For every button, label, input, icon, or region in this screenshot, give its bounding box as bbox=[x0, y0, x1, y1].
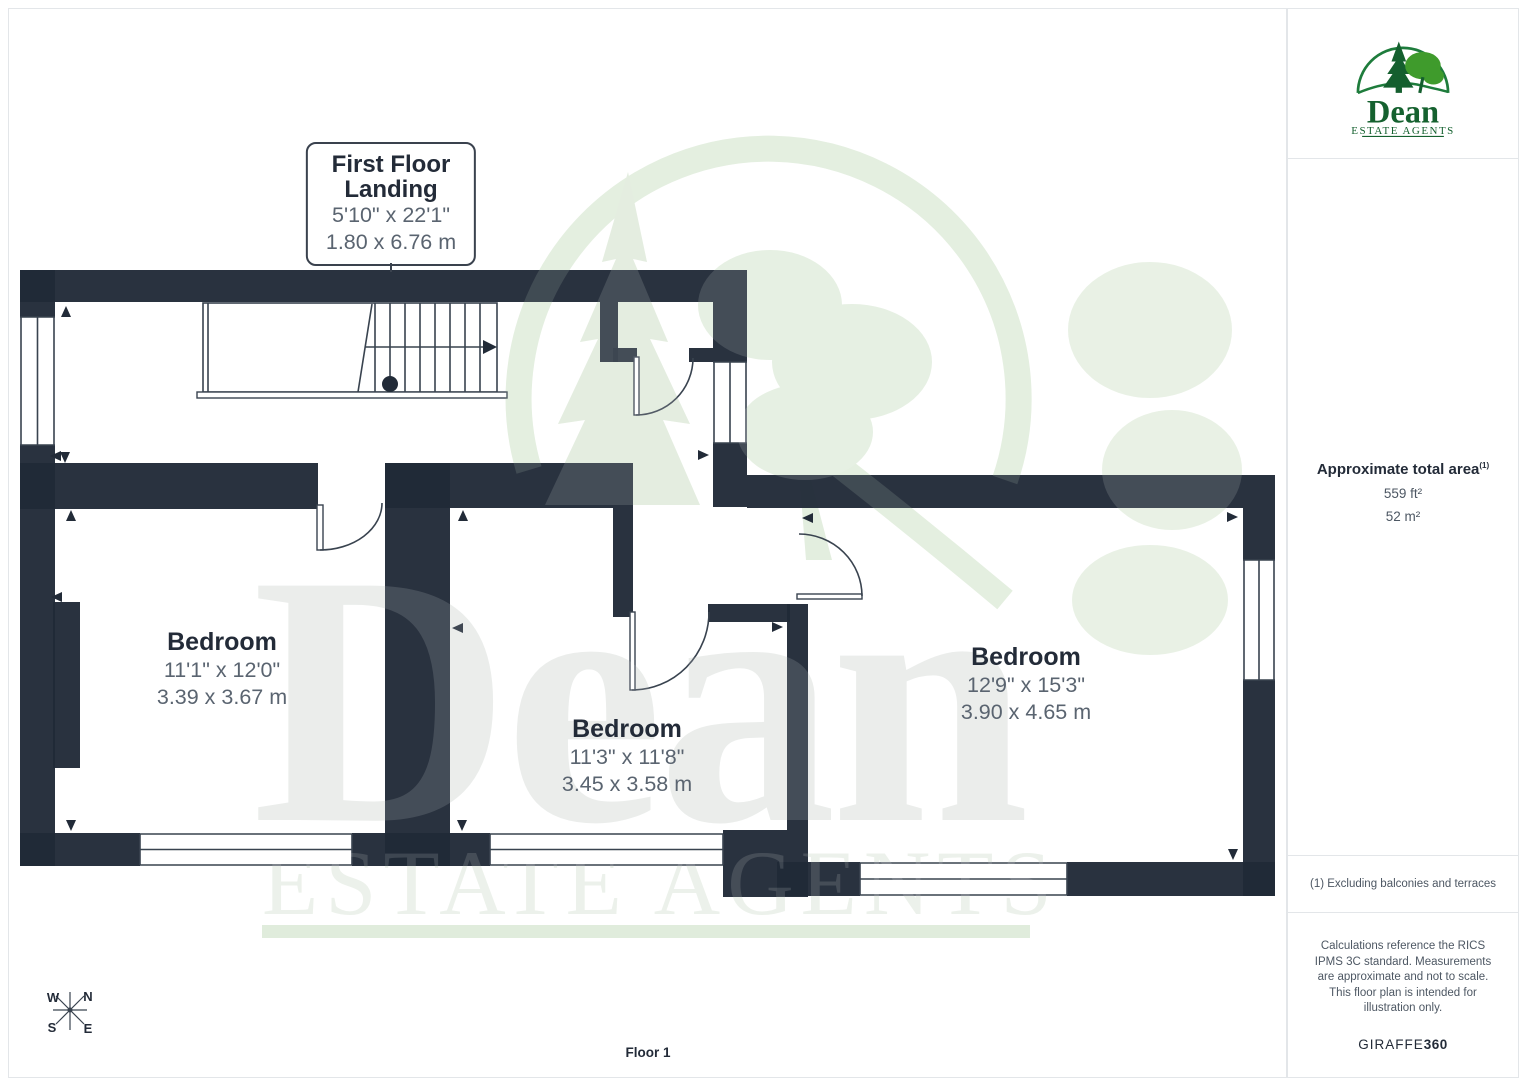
area-sqm: 52 m² bbox=[1288, 509, 1518, 524]
landing-label-callout: First Floor Landing 5'10" x 22'1" 1.80 x… bbox=[306, 142, 476, 266]
compass-east: E bbox=[84, 1021, 93, 1036]
total-area-section: Approximate total area(1) 559 ft² 52 m² bbox=[1288, 159, 1518, 856]
logo-tagline: ESTATE AGENTS bbox=[1351, 124, 1454, 136]
disclaimer-section: Calculations reference the RICS IPMS 3C … bbox=[1288, 913, 1518, 1052]
footnote-text: (1) Excluding balconies and terraces bbox=[1288, 856, 1518, 913]
landing-title: First Floor bbox=[326, 152, 456, 177]
floor-number-label: Floor 1 bbox=[625, 1045, 670, 1060]
stairs-newel-dot bbox=[382, 376, 398, 392]
landing-title-2: Landing bbox=[326, 177, 456, 202]
landing-imperial-dim: 5'10" x 22'1" bbox=[326, 202, 456, 229]
footnote-ref: (1) bbox=[1479, 461, 1489, 470]
area-heading: Approximate total area(1) bbox=[1288, 461, 1518, 478]
callout-connector-line bbox=[390, 263, 392, 272]
room-label-right-bedroom: Bedroom 12'9" x 15'3" 3.90 x 4.65 m bbox=[961, 642, 1091, 726]
window-right-bedroom-south bbox=[860, 862, 1067, 896]
giraffe360-brand: GIRAFFE360 bbox=[1306, 1037, 1500, 1053]
room-label-middle-bedroom: Bedroom 11'3" x 11'8" 3.45 x 3.58 m bbox=[562, 714, 692, 798]
window-left-bedroom-south bbox=[140, 833, 352, 866]
floor-plan-svg bbox=[0, 0, 1287, 1080]
disclaimer-text: Calculations reference the RICS IPMS 3C … bbox=[1306, 939, 1500, 1017]
agency-logo: Dean ESTATE AGENTS bbox=[1288, 9, 1518, 159]
compass-west: W bbox=[47, 990, 60, 1005]
floorplan-page: { "plan": { "landing_label": { "title_li… bbox=[0, 0, 1527, 1080]
door-left-bedroom bbox=[317, 503, 382, 550]
door-middle-bedroom bbox=[630, 612, 709, 690]
area-sqft: 559 ft² bbox=[1288, 486, 1518, 501]
dean-estate-agents-logo-icon: Dean ESTATE AGENTS bbox=[1340, 30, 1466, 138]
window-middle-bedroom-south bbox=[490, 833, 723, 866]
window-left-wall bbox=[20, 317, 55, 445]
stairs-direction-arrow-icon bbox=[483, 340, 497, 354]
window-landing-right bbox=[713, 362, 747, 443]
compass-north: N bbox=[83, 989, 92, 1004]
staircase bbox=[197, 303, 507, 398]
window-right-bedroom-east bbox=[1243, 560, 1275, 680]
door-landing-closet bbox=[634, 357, 693, 415]
compass-south: S bbox=[48, 1020, 57, 1035]
room-label-left-bedroom: Bedroom 11'1" x 12'0" 3.39 x 3.67 m bbox=[157, 627, 287, 711]
compass-rose-icon: W N S E bbox=[20, 960, 150, 1060]
landing-metric-dim: 1.80 x 6.76 m bbox=[326, 229, 456, 256]
sidebar: Dean ESTATE AGENTS Approximate total are… bbox=[1287, 8, 1519, 1078]
door-right-bedroom bbox=[797, 534, 862, 599]
